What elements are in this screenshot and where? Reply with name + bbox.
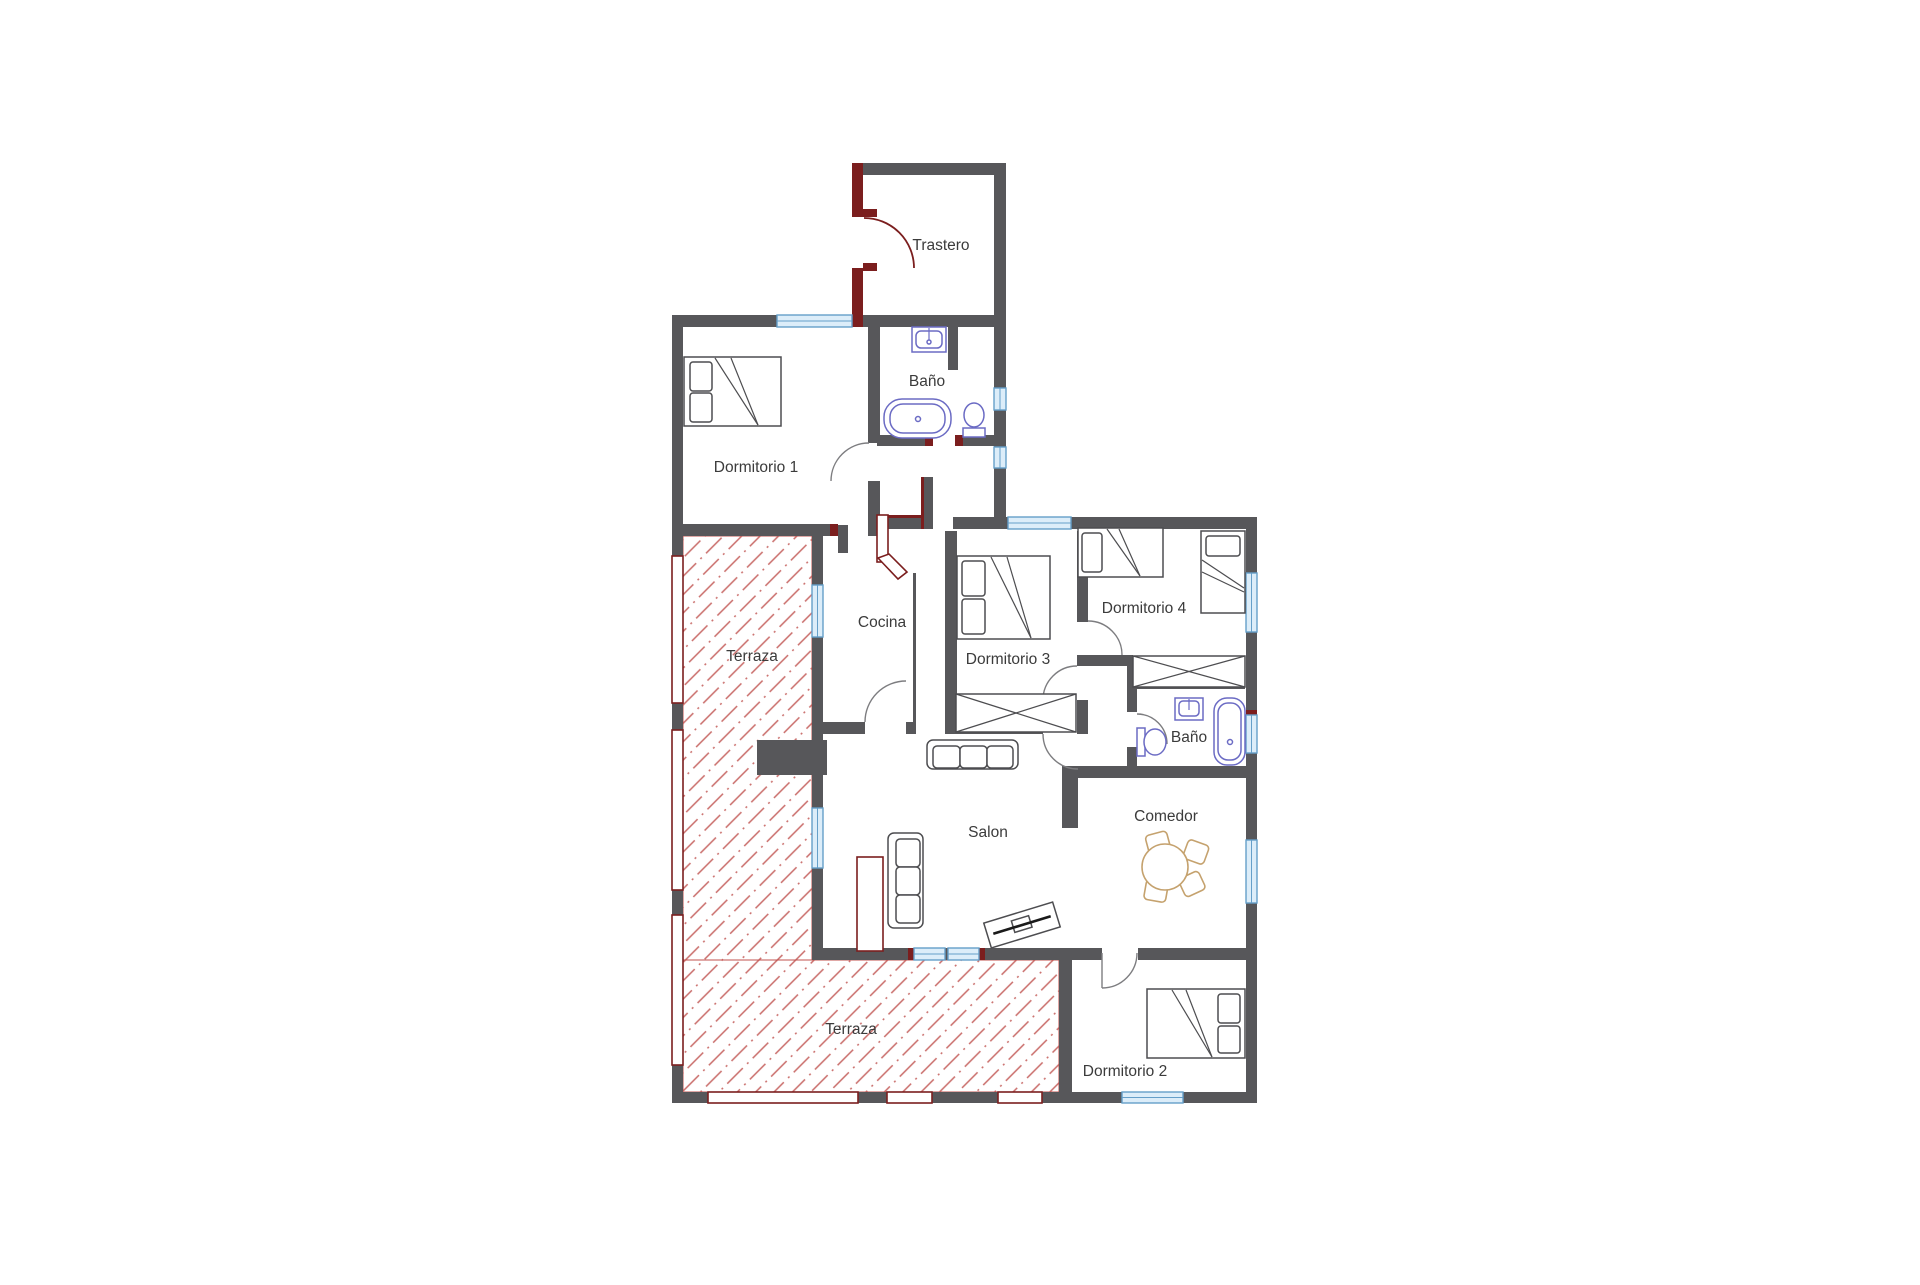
railing-icon bbox=[672, 730, 683, 890]
wall-segment bbox=[948, 327, 958, 370]
wall-segment bbox=[672, 524, 830, 536]
wardrobe-icon bbox=[1133, 656, 1245, 687]
dining-table-icon bbox=[1142, 830, 1210, 902]
wall-segment bbox=[1246, 903, 1257, 1103]
wall-segment bbox=[913, 573, 916, 722]
bed-icon bbox=[1078, 528, 1163, 577]
wall-segment bbox=[672, 315, 777, 327]
door-jamb bbox=[955, 435, 963, 446]
accent-wall-segment bbox=[852, 268, 863, 327]
door-jamb bbox=[979, 948, 985, 960]
bed-icon bbox=[957, 556, 1050, 639]
wall-segment bbox=[1246, 529, 1257, 573]
tv-unit-icon bbox=[984, 902, 1060, 948]
window-icon bbox=[948, 948, 979, 960]
window-icon bbox=[1246, 715, 1257, 753]
door-arc-icon bbox=[864, 218, 914, 268]
bathtub-icon bbox=[884, 399, 951, 438]
window-icon bbox=[914, 948, 945, 960]
wall-segment bbox=[932, 1092, 998, 1103]
window-icon bbox=[777, 315, 852, 327]
room-label-comedor: Comedor bbox=[1134, 808, 1198, 825]
room-label-bano-2: Baño bbox=[1171, 729, 1207, 746]
wall-segment bbox=[994, 163, 1006, 327]
sofa-icon bbox=[927, 740, 1018, 769]
wall-segment bbox=[757, 740, 827, 775]
toilet-icon bbox=[1137, 728, 1166, 756]
window-icon bbox=[1246, 573, 1257, 632]
railing-icon bbox=[672, 915, 683, 1065]
door-arc-icon bbox=[831, 443, 869, 481]
door-jamb bbox=[830, 524, 838, 536]
wall-segment bbox=[863, 315, 1006, 327]
wall-segment bbox=[923, 477, 933, 529]
window-icon bbox=[1008, 517, 1071, 529]
wall-segment bbox=[1062, 766, 1078, 828]
door-arc-icon bbox=[1043, 734, 1078, 769]
room-label-dormitorio-1: Dormitorio 1 bbox=[714, 459, 798, 476]
room-label-cocina: Cocina bbox=[858, 614, 907, 631]
floor-plan-stage: Trastero Baño Dormitorio 1 Terraza Cocin… bbox=[0, 0, 1920, 1280]
wall-segment bbox=[906, 722, 916, 734]
room-label-salon: Salon bbox=[968, 824, 1008, 841]
window-jamb bbox=[1246, 710, 1257, 715]
floor-plan-drawing: Trastero Baño Dormitorio 1 Terraza Cocin… bbox=[0, 0, 1920, 1280]
accent-wall-edge bbox=[921, 477, 924, 529]
wall-segment bbox=[672, 1092, 708, 1103]
railing-icon bbox=[998, 1092, 1042, 1103]
wall-segment bbox=[838, 525, 848, 553]
room-label-dormitorio-2: Dormitorio 2 bbox=[1083, 1063, 1167, 1080]
wall-segment bbox=[994, 410, 1006, 447]
room-label-dormitorio-4: Dormitorio 4 bbox=[1102, 600, 1187, 617]
window-icon bbox=[994, 388, 1006, 410]
wall-segment bbox=[953, 517, 1008, 529]
bed-icon bbox=[1201, 531, 1245, 613]
wall-segment bbox=[945, 531, 957, 734]
railing-icon bbox=[887, 1092, 932, 1103]
bed-icon bbox=[684, 357, 781, 426]
wall-segment bbox=[1042, 1092, 1122, 1103]
door-arc-icon bbox=[1088, 621, 1122, 655]
wall-segment bbox=[672, 1065, 683, 1092]
wall-segment bbox=[812, 528, 823, 585]
door-jamb bbox=[863, 263, 877, 271]
wall-segment bbox=[1071, 517, 1257, 529]
room-label-bano-1: Baño bbox=[909, 373, 945, 390]
toilet-icon bbox=[963, 403, 985, 437]
door-arc-icon bbox=[865, 681, 906, 722]
wall-segment bbox=[1062, 766, 1257, 778]
window-icon bbox=[994, 447, 1006, 468]
room-label-dormitorio-3: Dormitorio 3 bbox=[966, 651, 1050, 668]
wall-segment bbox=[1077, 700, 1088, 734]
wall-segment bbox=[812, 637, 823, 808]
wall-segment bbox=[672, 315, 683, 536]
sink-icon bbox=[912, 327, 946, 352]
wall-segment bbox=[858, 1092, 887, 1103]
window-icon bbox=[812, 808, 823, 868]
room-label-terraza-2: Terraza bbox=[825, 1021, 877, 1038]
room-label-terraza-1: Terraza bbox=[726, 648, 778, 665]
wall-segment bbox=[1246, 632, 1257, 715]
wardrobe-icon bbox=[956, 694, 1076, 732]
wall-segment bbox=[672, 890, 683, 915]
bathtub-icon bbox=[1214, 698, 1245, 765]
accent-wall-segment bbox=[852, 163, 863, 217]
wall-segment bbox=[1077, 655, 1133, 666]
sink-icon bbox=[1175, 698, 1203, 720]
wall-segment bbox=[852, 163, 1006, 175]
wall-segment bbox=[1138, 948, 1257, 960]
wall-segment bbox=[672, 703, 683, 730]
bed-icon bbox=[1147, 989, 1245, 1058]
door-jamb bbox=[908, 948, 914, 960]
room-label-trastero: Trastero bbox=[912, 237, 969, 254]
door-jamb bbox=[863, 209, 877, 217]
sofa-icon bbox=[888, 833, 923, 928]
window-icon bbox=[1122, 1092, 1183, 1103]
wall-segment bbox=[994, 327, 1006, 388]
door-arc-icon bbox=[1102, 953, 1137, 988]
wall-segment bbox=[1059, 948, 1072, 1092]
railing-icon bbox=[672, 556, 683, 703]
wall-segment bbox=[1183, 1092, 1257, 1103]
window-icon bbox=[812, 585, 823, 637]
wall-segment bbox=[868, 327, 880, 443]
wall-segment bbox=[985, 948, 1102, 960]
new-wall-chamfer bbox=[878, 554, 907, 579]
fireplace-icon bbox=[857, 857, 883, 951]
wall-segment bbox=[823, 722, 865, 734]
railing-icon bbox=[708, 1092, 858, 1103]
wall-segment bbox=[812, 868, 823, 960]
window-icon bbox=[1246, 840, 1257, 903]
wall-segment bbox=[672, 536, 683, 556]
